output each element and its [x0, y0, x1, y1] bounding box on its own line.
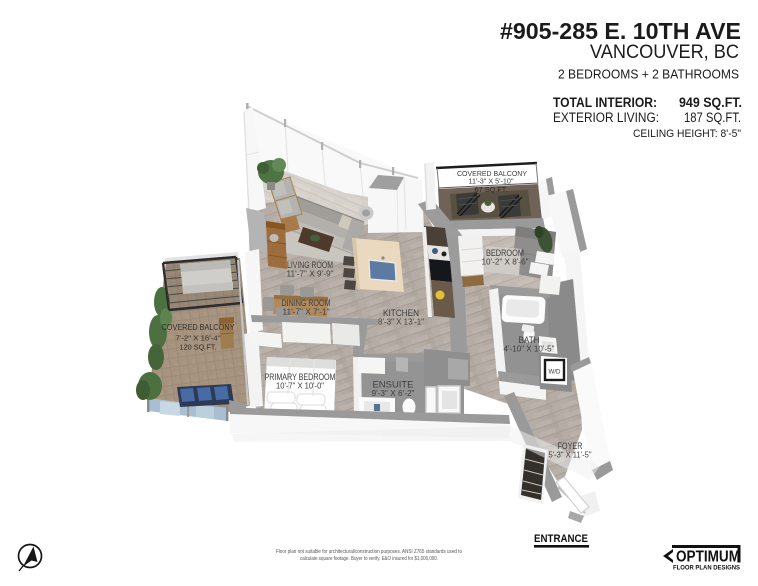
svg-text:BEDROOM: BEDROOM [486, 248, 524, 258]
svg-text:Floor plan not suitable for ar: Floor plan not suitable for architectura… [276, 549, 462, 555]
svg-text:ENTRANCE: ENTRANCE [534, 533, 588, 545]
svg-text:BATH: BATH [519, 335, 540, 345]
svg-text:EXTERIOR LIVING:: EXTERIOR LIVING: [553, 110, 659, 125]
svg-text:DINING ROOM: DINING ROOM [282, 298, 331, 308]
svg-text:11'-7" X 9'-9": 11'-7" X 9'-9" [287, 270, 334, 279]
svg-text:COVERED BALCONY: COVERED BALCONY [162, 323, 236, 332]
svg-text:11'-7" X 7'-1": 11'-7" X 7'-1" [283, 308, 330, 317]
svg-text:VANCOUVER, BC: VANCOUVER, BC [590, 41, 739, 63]
svg-text:10'-2" X 8'-6": 10'-2" X 8'-6" [482, 258, 529, 267]
svg-text:calculate square footage. Buye: calculate square footage. Buyer to verif… [300, 556, 438, 562]
svg-text:187 SQ.FT.: 187 SQ.FT. [684, 110, 741, 125]
svg-text:OPTIMUM: OPTIMUM [676, 549, 740, 566]
svg-text:2 BEDROOMS + 2 BATHROOMS: 2 BEDROOMS + 2 BATHROOMS [558, 67, 739, 82]
svg-text:11'-3" X 5'-10": 11'-3" X 5'-10" [469, 179, 515, 186]
svg-text:TOTAL INTERIOR:: TOTAL INTERIOR: [553, 95, 657, 110]
svg-text:9'-3" X 6'-2": 9'-3" X 6'-2" [372, 389, 415, 398]
svg-text:KITCHEN: KITCHEN [383, 308, 419, 318]
svg-text:949 SQ.FT.: 949 SQ.FT. [679, 95, 742, 110]
svg-text:PRIMARY BEDROOM: PRIMARY BEDROOM [265, 372, 336, 382]
svg-text:LIVING ROOM: LIVING ROOM [287, 260, 333, 270]
svg-text:COVERED BALCONY: COVERED BALCONY [457, 169, 527, 178]
svg-text:8'-3" X 13'-1": 8'-3" X 13'-1" [378, 318, 424, 327]
svg-text:CEILING HEIGHT: 8'-5": CEILING HEIGHT: 8'-5" [633, 128, 741, 140]
svg-text:120 SQ.FT.: 120 SQ.FT. [180, 343, 217, 352]
svg-text:7'-2" X 16'-4": 7'-2" X 16'-4" [176, 334, 221, 343]
svg-text:4'-10" X 10'-5": 4'-10" X 10'-5" [504, 345, 555, 354]
svg-text:FLOOR PLAN DESIGNS: FLOOR PLAN DESIGNS [673, 565, 740, 572]
svg-text:5'-3" X 11'-5": 5'-3" X 11'-5" [549, 451, 592, 460]
svg-text:FOYER: FOYER [558, 441, 583, 451]
svg-text:W/D: W/D [548, 369, 561, 376]
svg-text:10'-7" X 10'-0": 10'-7" X 10'-0" [276, 382, 324, 391]
svg-text:67 SQ.FT.: 67 SQ.FT. [475, 187, 508, 194]
svg-text:ENSUITE: ENSUITE [373, 380, 414, 390]
